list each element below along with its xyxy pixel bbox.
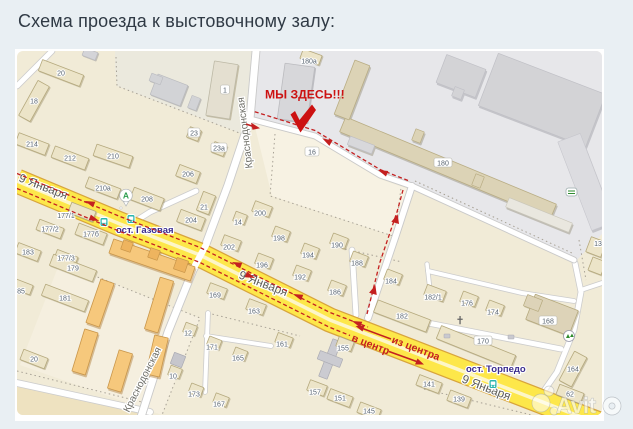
svg-text:23а: 23а [213,146,225,153]
svg-text:181: 181 [59,296,71,303]
svg-text:МЫ ЗДЕСЬ!!!: МЫ ЗДЕСЬ!!! [265,88,345,102]
svg-text:163: 163 [248,309,260,316]
svg-text:157: 157 [309,390,321,397]
svg-text:177/1: 177/1 [57,213,75,220]
svg-text:139: 139 [453,397,465,404]
svg-text:141: 141 [423,382,435,389]
svg-text:177/3: 177/3 [57,256,75,263]
svg-text:190: 190 [331,243,343,250]
svg-text:177б: 177б [83,231,99,239]
svg-text:14: 14 [234,220,242,227]
svg-text:21: 21 [200,205,208,212]
svg-text:180а: 180а [301,59,317,66]
svg-text:200: 200 [254,211,266,218]
svg-text:183: 183 [22,250,34,257]
svg-text:208: 208 [141,197,153,204]
svg-text:23: 23 [190,131,198,138]
svg-text:194: 194 [302,253,314,260]
svg-text:155: 155 [337,346,349,353]
svg-text:151: 151 [334,396,346,403]
svg-text:192: 192 [294,275,306,282]
svg-text:186: 186 [329,290,341,297]
svg-text:169: 169 [209,293,221,300]
svg-text:1: 1 [223,88,227,95]
svg-text:171: 171 [206,345,218,352]
svg-text:А: А [123,191,129,201]
svg-text:12: 12 [184,331,192,338]
svg-text:165: 165 [232,356,244,363]
svg-text:20: 20 [57,71,65,78]
svg-text:173: 173 [188,392,200,399]
svg-text:18: 18 [30,99,38,106]
svg-text:ост. Торпедо: ост. Торпедо [466,364,526,375]
svg-text:13: 13 [594,241,602,248]
svg-text:206: 206 [182,172,194,179]
svg-text:179: 179 [67,266,79,273]
svg-text:202: 202 [223,245,235,252]
svg-text:85: 85 [17,289,25,296]
svg-text:145: 145 [363,409,375,416]
svg-text:167: 167 [213,402,225,409]
svg-text:174: 174 [487,310,499,317]
svg-text:161: 161 [276,342,288,349]
svg-text:210: 210 [107,154,119,161]
svg-text:180: 180 [437,161,449,168]
svg-text:210а: 210а [95,186,111,193]
svg-text:196: 196 [256,263,268,270]
svg-text:204: 204 [185,218,197,225]
svg-text:177/2: 177/2 [41,227,59,234]
svg-text:176: 176 [461,301,473,308]
svg-text:182/1: 182/1 [424,295,442,302]
svg-text:164: 164 [567,367,579,374]
svg-text:10: 10 [169,374,177,381]
svg-text:20: 20 [30,357,38,364]
svg-text:170: 170 [477,339,489,346]
svg-text:188: 188 [351,261,363,268]
svg-text:182: 182 [396,314,408,321]
svg-text:212: 212 [64,156,76,163]
svg-text:184: 184 [385,279,397,286]
svg-text:168: 168 [542,319,554,326]
svg-text:198: 198 [273,236,285,243]
svg-text:16: 16 [308,150,316,157]
svg-text:Avit: Avit [556,393,597,418]
svg-text:214: 214 [26,142,38,149]
